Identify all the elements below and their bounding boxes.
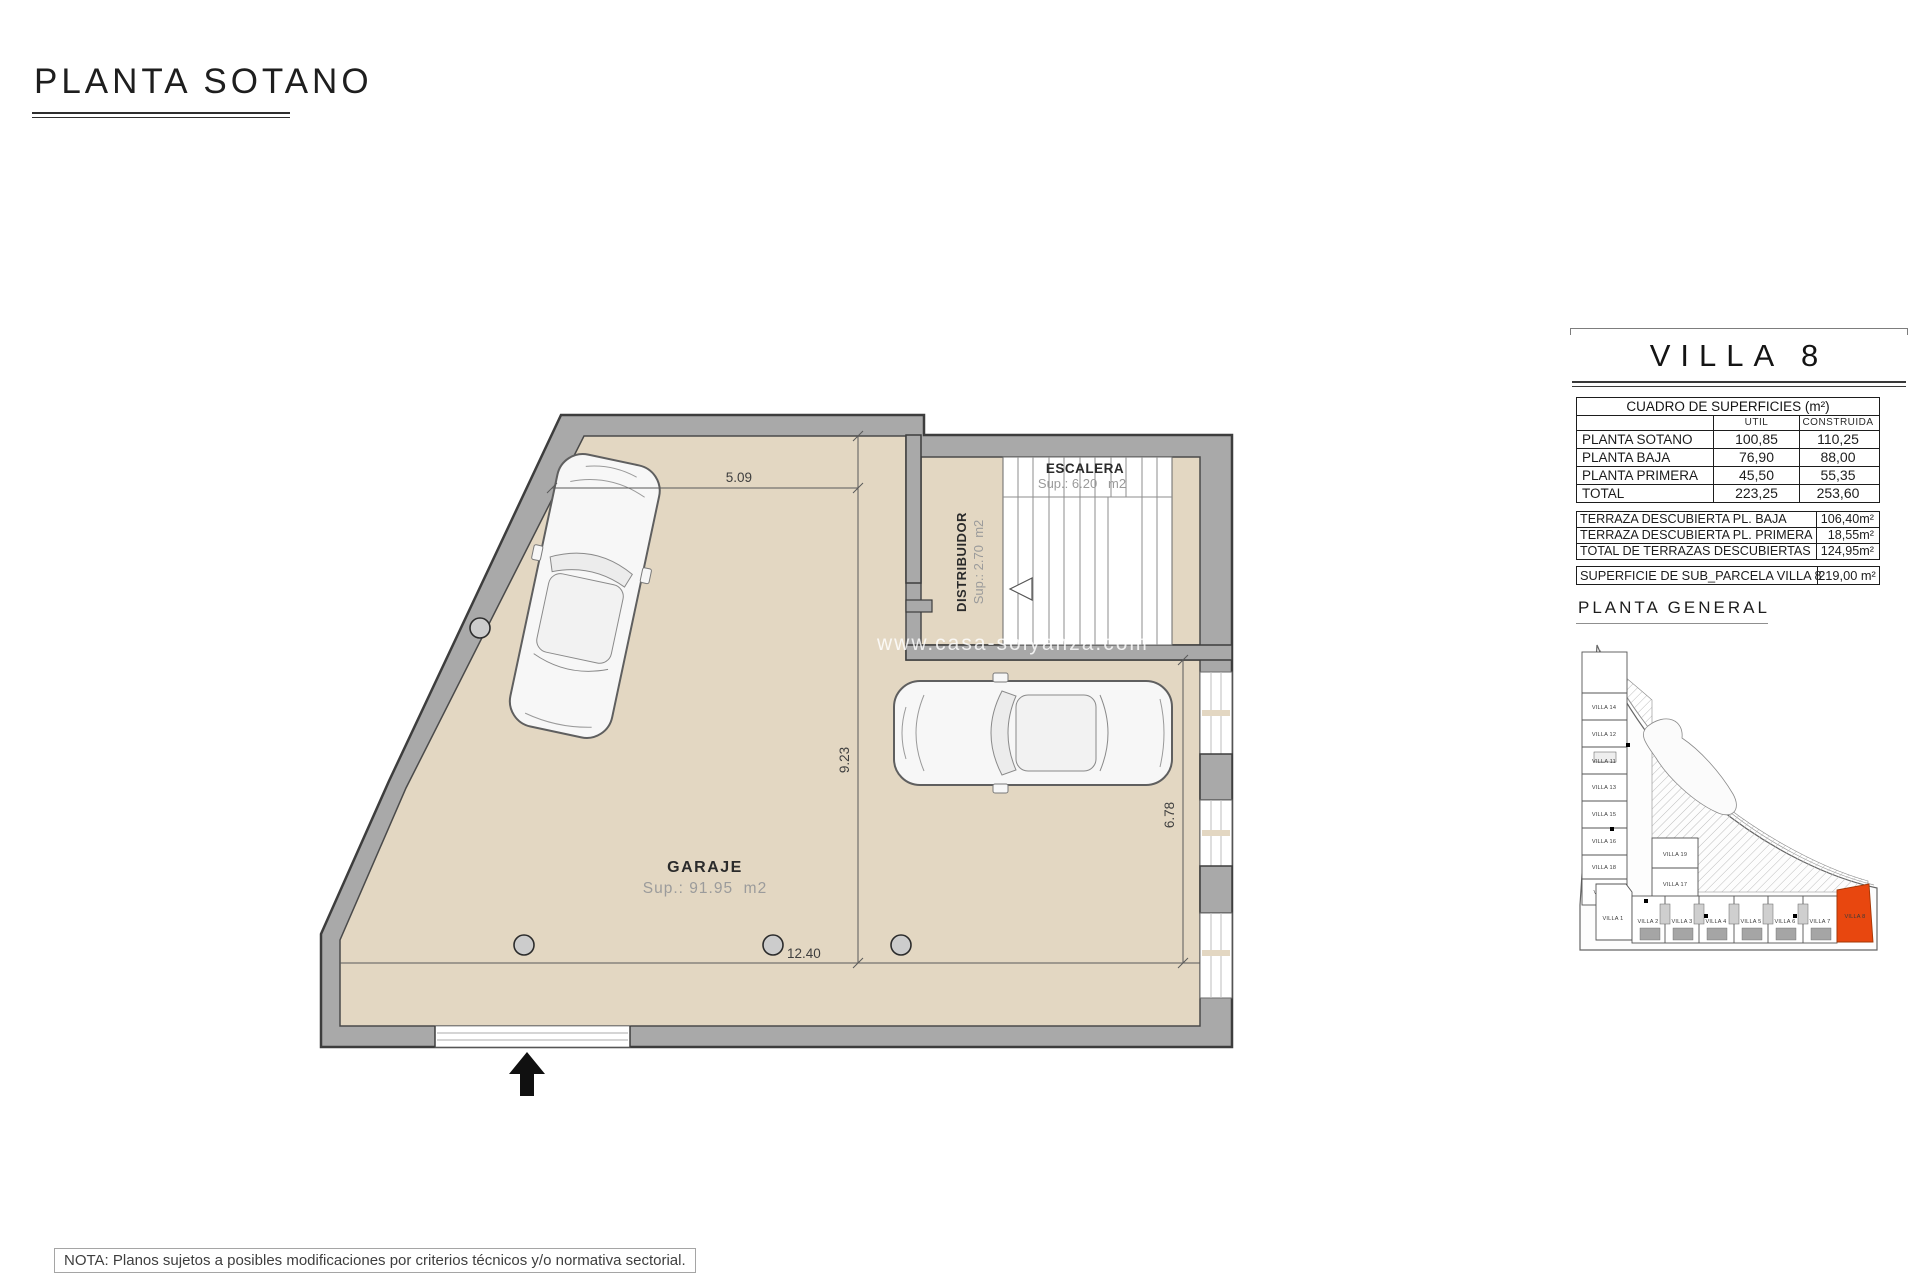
table-row: PLANTA PRIMERA 45,50 55,35 bbox=[1577, 467, 1879, 485]
wall-pier-2 bbox=[1200, 866, 1232, 913]
villa-label: VILLA 17 bbox=[1663, 882, 1687, 888]
note-text: NOTA: Planos sujetos a posibles modifica… bbox=[64, 1252, 686, 1269]
terraces-table: TERRAZA DESCUBIERTA PL. BAJA 106,40m² TE… bbox=[1576, 511, 1880, 560]
garage-door-opening bbox=[435, 1026, 630, 1047]
row-construida: 55,35 bbox=[1799, 467, 1876, 484]
column bbox=[470, 618, 490, 638]
surfaces-table-title: CUADRO DE SUPERFICIES (m²) bbox=[1577, 398, 1879, 416]
surfaces-table-subheader: UTIL CONSTRUIDA bbox=[1577, 416, 1879, 431]
villa-label: VILLA 15 bbox=[1592, 812, 1616, 818]
stairs-label: ESCALERA bbox=[1046, 461, 1124, 476]
villa-label: VILLA 6 bbox=[1775, 919, 1796, 925]
column bbox=[763, 935, 783, 955]
distributor-area-label: Sup.: 2.70 m2 bbox=[971, 520, 986, 605]
row-label: PLANTA PRIMERA bbox=[1577, 467, 1713, 484]
terrace-label: TERRAZA DESCUBIERTA PL. PRIMERA bbox=[1577, 528, 1816, 543]
row-util: 76,90 bbox=[1713, 449, 1799, 466]
window-openings bbox=[1200, 672, 1232, 998]
table-row: TERRAZA DESCUBIERTA PL. PRIMERA 18,55m² bbox=[1577, 528, 1879, 544]
villa-label-highlighted: VILLA 8 bbox=[1845, 914, 1866, 920]
villa-label: VILLA 11 bbox=[1592, 759, 1616, 765]
villa-label: VILLA 12 bbox=[1592, 732, 1616, 738]
site-plan-title: PLANTA GENERAL bbox=[1578, 598, 1770, 618]
table-row: TOTAL DE TERRAZAS DESCUBIERTAS 124,95m² bbox=[1577, 544, 1879, 559]
surfaces-table: CUADRO DE SUPERFICIES (m²) UTIL CONSTRUI… bbox=[1576, 397, 1880, 503]
row-util: 45,50 bbox=[1713, 467, 1799, 484]
villa8-highlight bbox=[1837, 884, 1873, 942]
row-util: 223,25 bbox=[1713, 485, 1799, 502]
row-construida: 88,00 bbox=[1799, 449, 1876, 466]
parcel-label: SUPERFICIE DE SUB_PARCELA VILLA 8 bbox=[1577, 567, 1817, 584]
terrace-value: 18,55m² bbox=[1816, 528, 1876, 543]
column bbox=[891, 935, 911, 955]
surfaces-col-util: UTIL bbox=[1713, 416, 1799, 430]
terrace-value: 106,40m² bbox=[1816, 512, 1876, 527]
villa-label: VILLA 18 bbox=[1592, 865, 1616, 871]
distributor-wall-stub bbox=[906, 600, 932, 612]
dimension-bottom-width: 12.40 bbox=[787, 946, 821, 961]
surfaces-col-empty bbox=[1577, 416, 1713, 430]
distributor-label: DISTRIBUIDOR bbox=[954, 512, 969, 612]
floor-plan: 5.09 9.23 6.78 12.40 GARAJE Sup.: 91.95 … bbox=[321, 415, 1232, 1096]
wall-pier-1 bbox=[1200, 754, 1232, 800]
parcel-surface-box: SUPERFICIE DE SUB_PARCELA VILLA 8 219,00… bbox=[1576, 566, 1880, 585]
site-plan-title-underline bbox=[1576, 623, 1768, 624]
stairs-area-label: Sup.: 6.20 m2 bbox=[1038, 476, 1126, 491]
villa-label: VILLA 16 bbox=[1592, 839, 1616, 845]
villa-label: VILLA 19 bbox=[1663, 852, 1687, 858]
villa-label: VILLA 4 bbox=[1706, 919, 1727, 925]
row-construida: 253,60 bbox=[1799, 485, 1876, 502]
dimension-right-depth: 6.78 bbox=[1162, 802, 1177, 828]
titleblock-top-rule bbox=[1570, 328, 1908, 329]
villas-middle-column bbox=[1652, 838, 1698, 898]
villa-label: VILLA 3 bbox=[1672, 919, 1693, 925]
distributor-wall bbox=[906, 435, 921, 583]
villa-label: VILLA 2 bbox=[1638, 919, 1659, 925]
parcel-value: 219,00 m² bbox=[1817, 567, 1876, 584]
row-label: PLANTA SOTANO bbox=[1577, 431, 1713, 448]
villa-title-underline-2 bbox=[1572, 386, 1906, 387]
dimension-top-width: 5.09 bbox=[726, 470, 752, 485]
row-util: 100,85 bbox=[1713, 431, 1799, 448]
villa-title-underline bbox=[1572, 381, 1906, 383]
entrance-arrow-icon bbox=[509, 1052, 545, 1096]
row-label: TOTAL bbox=[1577, 485, 1713, 502]
villa-label: VILLA 1 bbox=[1603, 916, 1624, 922]
note-box: NOTA: Planos sujetos a posibles modifica… bbox=[54, 1248, 696, 1273]
garage-area-label: Sup.: 91.95 m2 bbox=[643, 880, 767, 897]
row-construida: 110,25 bbox=[1799, 431, 1876, 448]
plan-sheet: PLANTA SOTANO bbox=[0, 0, 1920, 1280]
garage-label: GARAJE bbox=[667, 859, 743, 876]
row-label: PLANTA BAJA bbox=[1577, 449, 1713, 466]
villa-label: VILLA 13 bbox=[1592, 785, 1616, 791]
site-plan: VILLA 14 VILLA 12 VILLA 11 VILLA 13 VILL… bbox=[1580, 645, 1877, 950]
villa-title: VILLA 8 bbox=[1570, 338, 1908, 374]
villa-label: VILLA 14 bbox=[1592, 705, 1616, 711]
architectural-drawing: 5.09 9.23 6.78 12.40 GARAJE Sup.: 91.95 … bbox=[0, 0, 1920, 1280]
watermark: www.casa-solyanza.com bbox=[876, 632, 1149, 655]
table-row: PLANTA SOTANO 100,85 110,25 bbox=[1577, 431, 1879, 449]
surfaces-col-construida: CONSTRUIDA bbox=[1799, 416, 1876, 430]
column bbox=[514, 935, 534, 955]
table-row: TOTAL 223,25 253,60 bbox=[1577, 485, 1879, 502]
car-top-view bbox=[894, 673, 1172, 793]
terrace-value: 124,95m² bbox=[1816, 544, 1876, 559]
villa-label: VILLA 7 bbox=[1810, 919, 1831, 925]
table-row: PLANTA BAJA 76,90 88,00 bbox=[1577, 449, 1879, 467]
table-row: TERRAZA DESCUBIERTA PL. BAJA 106,40m² bbox=[1577, 512, 1879, 528]
dimension-garage-depth: 9.23 bbox=[837, 747, 852, 773]
terrace-label: TERRAZA DESCUBIERTA PL. BAJA bbox=[1577, 512, 1816, 527]
villa-label: VILLA 5 bbox=[1741, 919, 1762, 925]
terrace-label: TOTAL DE TERRAZAS DESCUBIERTAS bbox=[1577, 544, 1816, 559]
